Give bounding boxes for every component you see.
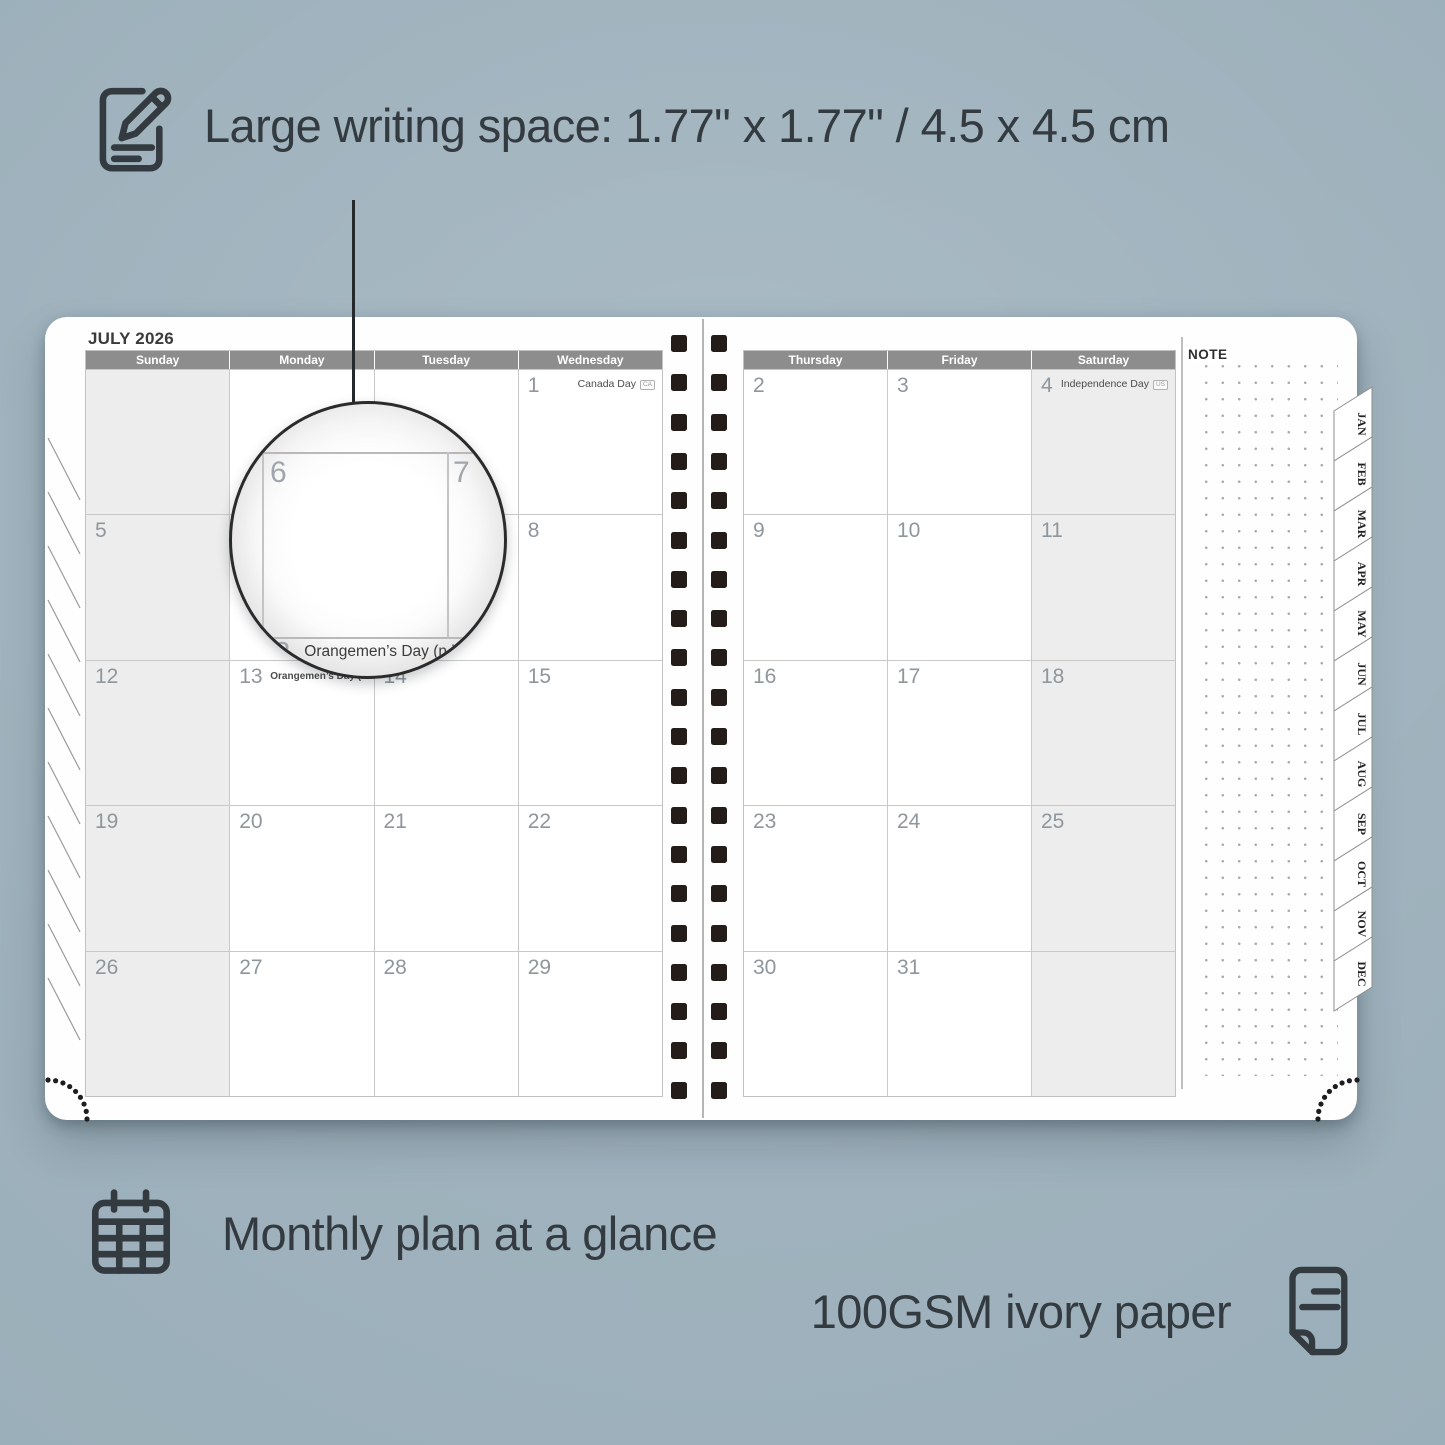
day-number: 28 bbox=[384, 956, 407, 980]
calendar-cell: 8 bbox=[519, 515, 662, 659]
calendar-week-row: 232425 bbox=[744, 805, 1175, 950]
day-number: 12 bbox=[95, 665, 118, 689]
binding-square bbox=[671, 728, 687, 745]
day-header: Saturday bbox=[1032, 351, 1175, 369]
note-label: NOTE bbox=[1188, 347, 1232, 362]
binding-square bbox=[671, 885, 687, 902]
binding-square bbox=[671, 1082, 687, 1099]
binding-square bbox=[671, 414, 687, 431]
day-number: 17 bbox=[897, 665, 920, 689]
month-tab-label: FEB bbox=[1355, 462, 1369, 485]
calendar-cell: 29 bbox=[519, 952, 662, 1096]
binding-square bbox=[671, 453, 687, 470]
binding-square bbox=[711, 571, 727, 588]
day-number: 8 bbox=[528, 519, 540, 543]
day-number: 18 bbox=[1041, 665, 1064, 689]
day-header: Sunday bbox=[86, 351, 230, 369]
binding-square bbox=[711, 1042, 727, 1059]
binding-square bbox=[671, 925, 687, 942]
day-number: 31 bbox=[897, 956, 920, 980]
day-number: 21 bbox=[384, 810, 407, 834]
calendar-cell: 19 bbox=[86, 806, 230, 950]
holiday-country-badge: CA bbox=[640, 380, 655, 390]
binding-square bbox=[671, 846, 687, 863]
day-number: 20 bbox=[239, 810, 262, 834]
calendar-cell: 24 bbox=[888, 806, 1032, 950]
page-edge-hatch bbox=[47, 438, 83, 1044]
day-number: 11 bbox=[1041, 519, 1063, 543]
day-number: 10 bbox=[897, 519, 920, 543]
calendar-cell bbox=[86, 370, 230, 514]
day-header-row: SundayMondayTuesdayWednesday bbox=[86, 351, 662, 369]
calendar-cell: 9 bbox=[744, 515, 888, 659]
calendar-cell: 28 bbox=[375, 952, 519, 1096]
binding-square bbox=[671, 767, 687, 784]
month-title: JULY 2026 bbox=[88, 329, 174, 349]
paper-icon bbox=[1271, 1262, 1357, 1360]
binding-square bbox=[671, 335, 687, 352]
day-number: 3 bbox=[897, 374, 909, 398]
magnified-holiday-row: 13Orangemen’s Day (n.i.)UK bbox=[258, 637, 491, 670]
note-separator-line bbox=[1181, 337, 1183, 1089]
day-number: 15 bbox=[528, 665, 551, 689]
binding-square bbox=[711, 964, 727, 981]
month-tab-label: JUN bbox=[1355, 662, 1369, 686]
binding-square bbox=[711, 767, 727, 784]
calendar-cell: 17 bbox=[888, 661, 1032, 805]
binding-square bbox=[671, 610, 687, 627]
calendar-week-row: 161718 bbox=[744, 660, 1175, 805]
page-edge-hatch-line bbox=[48, 654, 80, 716]
holiday-country-badge: US bbox=[1153, 380, 1168, 390]
binding-square bbox=[711, 532, 727, 549]
calendar-cell: 21 bbox=[375, 806, 519, 950]
calendar-cell: 11 bbox=[1032, 515, 1175, 659]
annotation-paper-text: 100GSM ivory paper bbox=[811, 1284, 1231, 1339]
magnified-grid-line bbox=[262, 452, 264, 637]
binding-square bbox=[711, 689, 727, 706]
binding-square bbox=[671, 1042, 687, 1059]
magnifier-circle: 6 7 13Orangemen’s Day (n.i.)UK bbox=[229, 401, 507, 679]
calendar-cell: 25 bbox=[1032, 806, 1175, 950]
calendar-cell: 2 bbox=[744, 370, 888, 514]
day-number: 24 bbox=[897, 810, 920, 834]
day-header: Thursday bbox=[744, 351, 888, 369]
magnified-holiday-label: Orangemen’s Day (n.i.) bbox=[304, 643, 464, 660]
calendar-week-row: 1213Orangemen’s Day (n.i.)UK1415 bbox=[86, 660, 662, 805]
page-edge-hatch-line bbox=[48, 924, 80, 986]
page-edge-hatch-line bbox=[48, 816, 80, 878]
month-tab-label: JAN bbox=[1355, 412, 1369, 436]
day-number: 1 bbox=[528, 374, 540, 398]
pencil-note-icon bbox=[86, 76, 180, 174]
annotation-writing-space-text: Large writing space: 1.77" x 1.77" / 4.5… bbox=[204, 98, 1169, 153]
binding-square bbox=[711, 453, 727, 470]
calendar-right-page: ThursdayFridaySaturday234Independence Da… bbox=[743, 350, 1176, 1097]
binding-square bbox=[671, 649, 687, 666]
day-number: 26 bbox=[95, 956, 118, 980]
calendar-cell: 15 bbox=[519, 661, 662, 805]
day-header-row: ThursdayFridaySaturday bbox=[744, 351, 1175, 369]
calendar-icon bbox=[84, 1186, 178, 1280]
calendar-cell: 26 bbox=[86, 952, 230, 1096]
binding-square bbox=[671, 532, 687, 549]
product-showcase: JULY 2026 SundayMondayTuesdayWednesday1C… bbox=[0, 0, 1445, 1445]
calendar-week-row: 91011 bbox=[744, 514, 1175, 659]
page-edge-hatch-line bbox=[48, 546, 80, 608]
magnified-day-number: 7 bbox=[453, 456, 470, 490]
month-tab-label: AUG bbox=[1355, 761, 1369, 788]
month-tab-label: APR bbox=[1355, 562, 1369, 587]
calendar-cell: 16 bbox=[744, 661, 888, 805]
annotation-monthly-plan: Monthly plan at a glance bbox=[84, 1186, 717, 1280]
calendar-cell: 14 bbox=[375, 661, 519, 805]
binding-square bbox=[711, 649, 727, 666]
calendar-cell: 3 bbox=[888, 370, 1032, 514]
day-number: 25 bbox=[1041, 810, 1064, 834]
page-edge-hatch-line bbox=[48, 762, 80, 824]
binding-square bbox=[671, 374, 687, 391]
month-tab-label: NOV bbox=[1355, 911, 1369, 938]
magnified-grid-line bbox=[232, 452, 504, 454]
calendar-week-row: 26272829 bbox=[86, 951, 662, 1096]
binding-square bbox=[671, 964, 687, 981]
calendar-cell: 23 bbox=[744, 806, 888, 950]
day-header: Wednesday bbox=[519, 351, 662, 369]
page-edge-hatch-line bbox=[48, 708, 80, 770]
calendar-cell: 30 bbox=[744, 952, 888, 1096]
binding-square bbox=[711, 414, 727, 431]
magnified-holiday-badge: UK bbox=[470, 645, 491, 659]
page-gap-line bbox=[702, 319, 704, 1118]
binding-square bbox=[711, 610, 727, 627]
binding-square bbox=[711, 846, 727, 863]
day-number: 16 bbox=[753, 665, 776, 689]
binding-square bbox=[711, 492, 727, 509]
day-number: 2 bbox=[753, 374, 765, 398]
calendar-cell: 10 bbox=[888, 515, 1032, 659]
binding-square bbox=[711, 1003, 727, 1020]
binding-square bbox=[711, 374, 727, 391]
holiday-label: Independence DayUS bbox=[1061, 378, 1168, 390]
day-number: 27 bbox=[239, 956, 262, 980]
calendar-cell: 13Orangemen’s Day (n.i.)UK bbox=[230, 661, 374, 805]
calendar-cell: 12 bbox=[86, 661, 230, 805]
day-number: 19 bbox=[95, 810, 118, 834]
binding-square bbox=[711, 807, 727, 824]
binding-square bbox=[711, 728, 727, 745]
day-number: 30 bbox=[753, 956, 776, 980]
binding-square bbox=[711, 1082, 727, 1099]
day-header: Tuesday bbox=[375, 351, 519, 369]
calendar-cell: 20 bbox=[230, 806, 374, 950]
day-header: Friday bbox=[888, 351, 1032, 369]
magnified-day-number: 13 bbox=[258, 637, 290, 669]
calendar-cell: 18 bbox=[1032, 661, 1175, 805]
holiday-label: Canada DayCA bbox=[578, 378, 655, 390]
page-edge-hatch-line bbox=[48, 438, 80, 500]
page-edge-hatch-line bbox=[48, 870, 80, 932]
month-tabs: JANFEBMARAPRMAYJUNJULAUGSEPOCTNOVDEC bbox=[1334, 385, 1378, 1045]
note-dot-grid bbox=[1192, 352, 1338, 1076]
binding-square bbox=[671, 492, 687, 509]
day-number: 5 bbox=[95, 519, 107, 543]
annotation-paper: 100GSM ivory paper bbox=[811, 1262, 1357, 1360]
day-number: 9 bbox=[753, 519, 765, 543]
month-tab-label: DEC bbox=[1355, 961, 1369, 986]
month-tab-label: MAR bbox=[1355, 510, 1369, 539]
page-edge-hatch-line bbox=[48, 978, 80, 1040]
calendar-cell bbox=[1032, 952, 1175, 1096]
day-number: 22 bbox=[528, 810, 551, 834]
annotation-writing-space: Large writing space: 1.77" x 1.77" / 4.5… bbox=[86, 76, 1169, 174]
day-number: 29 bbox=[528, 956, 551, 980]
binding-square bbox=[671, 1003, 687, 1020]
day-number: 4 bbox=[1041, 374, 1053, 398]
binding-square bbox=[671, 571, 687, 588]
annotation-monthly-plan-text: Monthly plan at a glance bbox=[222, 1206, 717, 1261]
page-edge-hatch-line bbox=[48, 492, 80, 554]
binding-square bbox=[671, 807, 687, 824]
month-tab-label: OCT bbox=[1355, 861, 1369, 887]
calendar-cell: 22 bbox=[519, 806, 662, 950]
calendar-cell: 31 bbox=[888, 952, 1032, 1096]
calendar-week-row: 3031 bbox=[744, 951, 1175, 1096]
calendar-cell: 27 bbox=[230, 952, 374, 1096]
calendar-cell: 4Independence DayUS bbox=[1032, 370, 1175, 514]
binding-square bbox=[711, 335, 727, 352]
month-tab-label: SEP bbox=[1355, 813, 1369, 835]
month-tab-label: MAY bbox=[1355, 610, 1369, 638]
binding-square bbox=[711, 925, 727, 942]
calendar-week-row: 234Independence DayUS bbox=[744, 369, 1175, 514]
calendar-week-row: 19202122 bbox=[86, 805, 662, 950]
magnified-grid-line bbox=[447, 452, 449, 637]
callout-line bbox=[352, 200, 355, 406]
day-number: 23 bbox=[753, 810, 776, 834]
month-tab-label: JUL bbox=[1355, 713, 1369, 736]
binding-square bbox=[671, 689, 687, 706]
page-edge-hatch-line bbox=[48, 600, 80, 662]
calendar-cell: 1Canada DayCA bbox=[519, 370, 662, 514]
magnified-day-number: 6 bbox=[270, 456, 287, 490]
calendar-cell: 5 bbox=[86, 515, 230, 659]
binding-square bbox=[711, 885, 727, 902]
